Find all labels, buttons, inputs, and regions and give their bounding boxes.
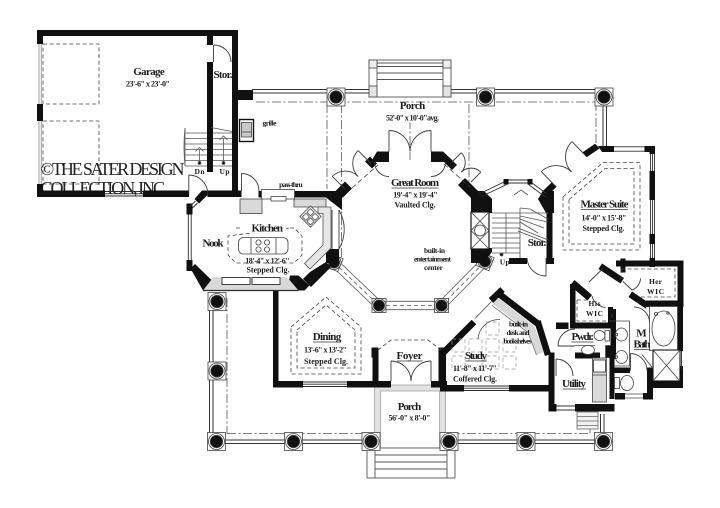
svg-text:His: His — [589, 299, 601, 308]
svg-text:Coffered Clg.: Coffered Clg. — [453, 375, 497, 384]
svg-text:14'-0" x 15'-8": 14'-0" x 15'-8" — [582, 214, 627, 223]
svg-text:Dn: Dn — [195, 167, 206, 176]
svg-text:Foyer: Foyer — [397, 350, 423, 362]
svg-text:56'-0" x 8'-0": 56'-0" x 8'-0" — [389, 414, 431, 423]
svg-text:Great Room: Great Room — [391, 177, 439, 189]
svg-text:52'-0" x 10'-0"avg.: 52'-0" x 10'-0"avg. — [386, 114, 439, 123]
svg-text:18'-4" x 12'-6": 18'-4" x 12'-6" — [245, 257, 290, 266]
svg-text:Stepped Clg.: Stepped Clg. — [583, 224, 625, 233]
svg-text:WIC: WIC — [586, 309, 603, 318]
svg-text:Pwdr.: Pwdr. — [572, 331, 594, 343]
svg-text:Vaulted Clg.: Vaulted Clg. — [395, 201, 436, 210]
svg-text:Garage: Garage — [133, 66, 165, 78]
svg-text:grille: grille — [263, 119, 278, 128]
svg-text:center: center — [424, 263, 444, 272]
svg-text:Porch: Porch — [398, 401, 422, 413]
svg-text:©THE SATER DESIGN: ©THE SATER DESIGN — [41, 159, 185, 179]
svg-text:Up: Up — [500, 258, 510, 267]
svg-text:Up: Up — [220, 167, 230, 176]
svg-text:WIC: WIC — [647, 287, 664, 296]
svg-text:23'-6" x 23'-0": 23'-6" x 23'-0" — [126, 80, 170, 89]
svg-text:19'-4" x 19'-4": 19'-4" x 19'-4" — [393, 191, 438, 200]
svg-text:Study: Study — [465, 350, 488, 362]
svg-text:Utility: Utility — [562, 378, 587, 390]
svg-text:13'-6" x 13'-2": 13'-6" x 13'-2" — [304, 346, 347, 355]
svg-text:Nook: Nook — [203, 238, 225, 250]
svg-text:Her: Her — [649, 277, 663, 286]
svg-text:Stepped Clg.: Stepped Clg. — [247, 266, 290, 275]
svg-text:Porch: Porch — [400, 100, 426, 112]
svg-text:pass-thru: pass-thru — [279, 180, 303, 189]
svg-text:Stor.: Stor. — [214, 69, 233, 81]
svg-text:Kitchen: Kitchen — [252, 223, 284, 235]
svg-text:Stepped Clg.: Stepped Clg. — [304, 357, 348, 366]
svg-text:Master Suite: Master Suite — [581, 199, 629, 211]
svg-text:Dining: Dining — [313, 331, 342, 343]
svg-text:Bath: Bath — [634, 339, 651, 351]
svg-text:Stor.: Stor. — [528, 237, 547, 249]
svg-text:bookshelves: bookshelves — [504, 337, 532, 346]
svg-text:11'-8" x 11'-7": 11'-8" x 11'-7" — [453, 364, 497, 373]
